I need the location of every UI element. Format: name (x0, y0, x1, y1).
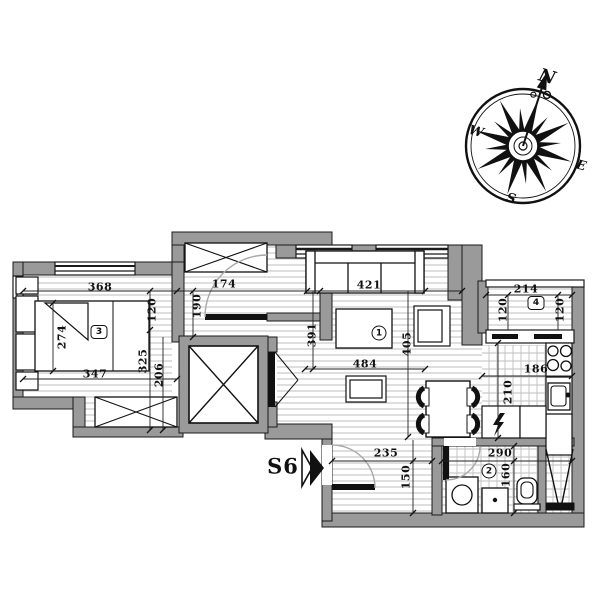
dining-table (426, 381, 470, 437)
dim-living-depth-right: 405 (401, 332, 414, 356)
dim-bedroom-width-top: 368 (88, 281, 112, 294)
floor-plan-drawing (0, 0, 600, 600)
entrance-arrow-icon (302, 450, 324, 486)
kitchen-sink-icon (548, 383, 570, 410)
unit-label: S6 (267, 454, 299, 479)
wardrobe-hall (185, 243, 267, 272)
armchair (414, 306, 450, 346)
entrance-door-gap (322, 445, 332, 485)
dim-balcony-depth-left: 120 (497, 298, 510, 322)
bathroom-door-gap (444, 438, 476, 446)
dim-balcony-width: 214 (514, 283, 538, 296)
floor-plan-page: 368 120 190 174 274 325 206 347 421 391 … (0, 0, 600, 600)
room-badge-balcony: 4 (528, 296, 545, 310)
dim-bathroom-depth: 160 (500, 463, 513, 487)
room-badge-bedroom: 3 (91, 325, 108, 339)
wardrobe-bedroom (95, 397, 177, 427)
dim-bedroom-strip-325: 325 (137, 349, 150, 373)
dim-kitchen-depth: 210 (502, 380, 515, 404)
dim-living-depth-left: 391 (306, 323, 319, 347)
dim-entry-depth-150: 150 (400, 465, 413, 489)
dim-bedroom-width-bottom: 347 (83, 368, 107, 381)
dim-hall-width-174: 174 (212, 278, 236, 291)
room-badge-bathroom: 2 (482, 464, 497, 479)
tv-unit (346, 376, 386, 402)
room-badge-living: 1 (372, 326, 387, 341)
compass-rose-icon (466, 72, 580, 203)
dim-entry-width-235: 235 (374, 447, 398, 460)
dim-hall-depth-190: 190 (191, 294, 204, 318)
bathroom-sink-icon (482, 488, 508, 513)
dim-balcony-depth-right: 120 (554, 298, 567, 322)
dim-living-width-top: 421 (357, 279, 381, 292)
washing-machine-icon (446, 477, 478, 513)
dim-bathroom-width: 290 (488, 447, 512, 460)
toilet-icon (514, 478, 540, 510)
dim-bed-length-274: 274 (56, 325, 69, 349)
dim-living-width-bottom: 484 (353, 358, 377, 371)
dim-bedroom-strip-120: 120 (146, 298, 159, 322)
elevator-shaft (179, 336, 268, 433)
dim-bedroom-strip-206: 206 (153, 363, 166, 387)
dim-kitchen-width: 186 (524, 363, 548, 376)
